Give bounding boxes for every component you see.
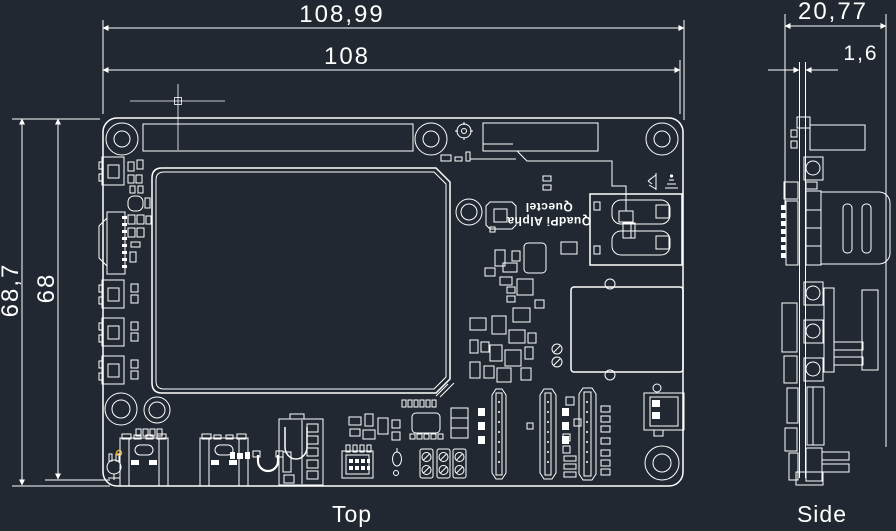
dim-text-overall-thickness: 20,77 [798,0,868,25]
silkscreen-line2: Quectel [525,200,573,214]
top-view-label: Top [332,501,372,527]
silkscreen-mark [230,452,250,459]
silkscreen-line1: QuadPi Alpha [507,214,591,228]
dim-text-pcb-height: 68 [33,273,60,304]
dim-text-pcb-thickness: 1,6 [843,42,878,65]
dim-text-pcb-width: 108 [324,43,370,70]
dim-text-overall-height: 68,7 [0,263,24,318]
drawing-background [0,0,896,531]
side-view-label: Side [797,501,847,527]
cad-canvas: 108,99 108 68,7 68 [0,0,896,531]
dim-text-overall-width: 108,99 [299,1,384,28]
